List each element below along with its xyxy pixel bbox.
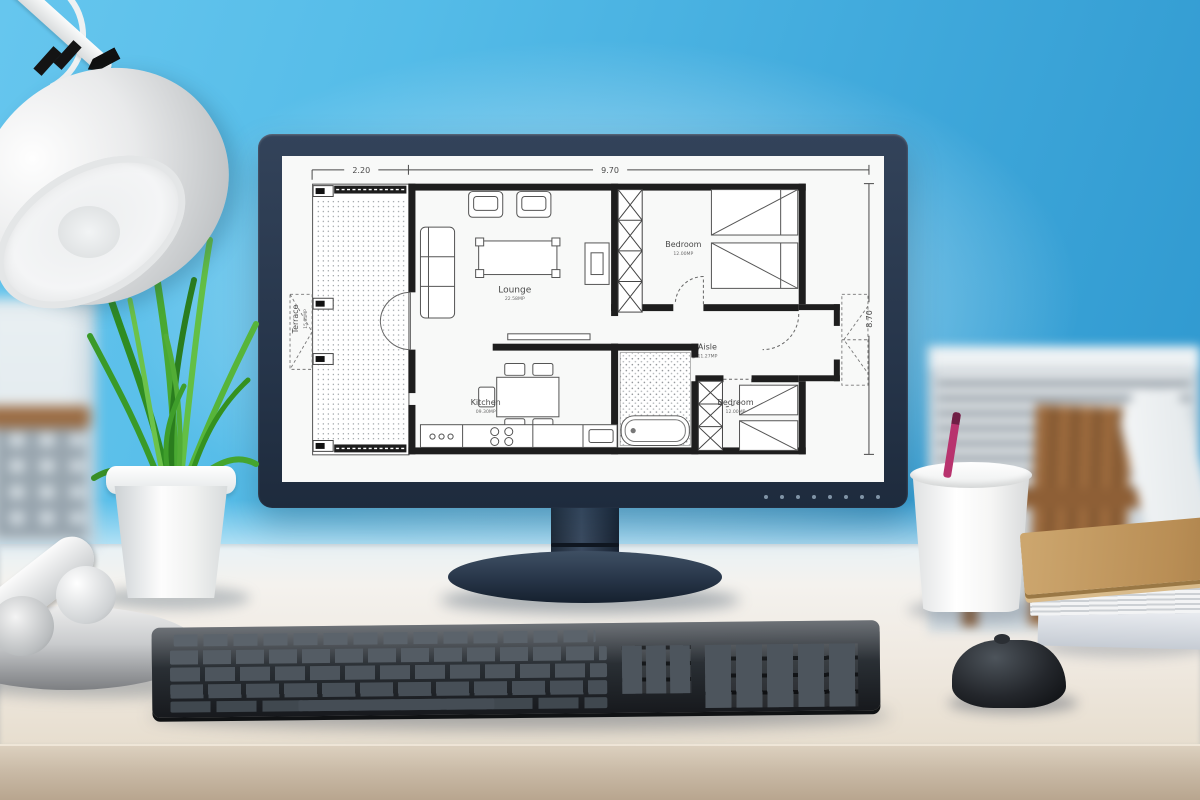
blurred-building-windows <box>0 428 86 538</box>
lamp-bulb <box>58 206 120 258</box>
plant-pot <box>106 466 236 600</box>
mouse <box>952 640 1066 708</box>
keyboard-function-row <box>173 630 595 646</box>
keyboard-row <box>170 663 607 682</box>
svg-text:09.30MP: 09.30MP <box>476 409 496 415</box>
bezel-dot-icon <box>812 495 816 499</box>
dim-label-house-width: 9.70 <box>601 166 619 175</box>
dim-label-terrace-width: 2.20 <box>352 166 370 175</box>
books-stack <box>1030 524 1200 654</box>
svg-text:Terrace: Terrace <box>291 305 300 335</box>
cup-body <box>910 472 1032 612</box>
floor-plan-drawing: 2.20 9.70 8.70 <box>282 156 884 482</box>
bezel-dot-icon <box>796 495 800 499</box>
keyboard-row <box>170 680 607 699</box>
lamp-base-knob <box>56 566 116 624</box>
monitor-screen: 2.20 9.70 8.70 <box>282 156 884 482</box>
bezel-dot-icon <box>876 495 880 499</box>
keyboard-nav-cluster <box>621 645 691 694</box>
bezel-dot-icon <box>764 495 768 499</box>
svg-text:12.00MP: 12.00MP <box>673 251 693 257</box>
bezel-dot-icon <box>860 495 864 499</box>
svg-text:15.64MP: 15.64MP <box>303 309 309 329</box>
desk-front-edge <box>0 744 1200 800</box>
cup-rim <box>910 462 1032 488</box>
monitor-stand-seam <box>551 543 619 547</box>
bathroom <box>620 353 690 446</box>
label-aisle: Aisle <box>698 343 717 352</box>
dim-label-house-height: 8.70 <box>865 310 874 328</box>
svg-text:11.27MP: 11.27MP <box>697 354 717 360</box>
wardrobe-bottom <box>698 381 722 450</box>
svg-text:12.00MP: 12.00MP <box>726 409 746 415</box>
desk-scene-photo: 2.20 9.70 8.70 <box>0 0 1200 800</box>
label-lounge: Lounge <box>498 285 532 295</box>
keyboard <box>152 620 881 718</box>
label-kitchen: Kitchen <box>471 398 501 407</box>
keyboard-row <box>170 646 607 665</box>
svg-text:22.58MP: 22.58MP <box>505 296 525 302</box>
cup <box>910 462 1032 612</box>
bezel-indicator-dots <box>764 495 880 499</box>
monitor: 2.20 9.70 8.70 <box>258 134 908 508</box>
monitor-stand-base <box>448 551 722 603</box>
blurred-wood-rail <box>0 406 90 428</box>
wardrobe-top <box>618 190 642 312</box>
keyboard-spacebar <box>298 698 495 712</box>
mouse-scroll-nub <box>994 634 1010 644</box>
keyboard-numpad <box>705 643 859 708</box>
bezel-dot-icon <box>828 495 832 499</box>
bezel-dot-icon <box>844 495 848 499</box>
label-bedroom-top: Bedroom <box>665 240 702 249</box>
plant-pot-body <box>111 486 231 598</box>
label-bedroom-bottom: Bedroom <box>717 398 754 407</box>
bezel-dot-icon <box>780 495 784 499</box>
